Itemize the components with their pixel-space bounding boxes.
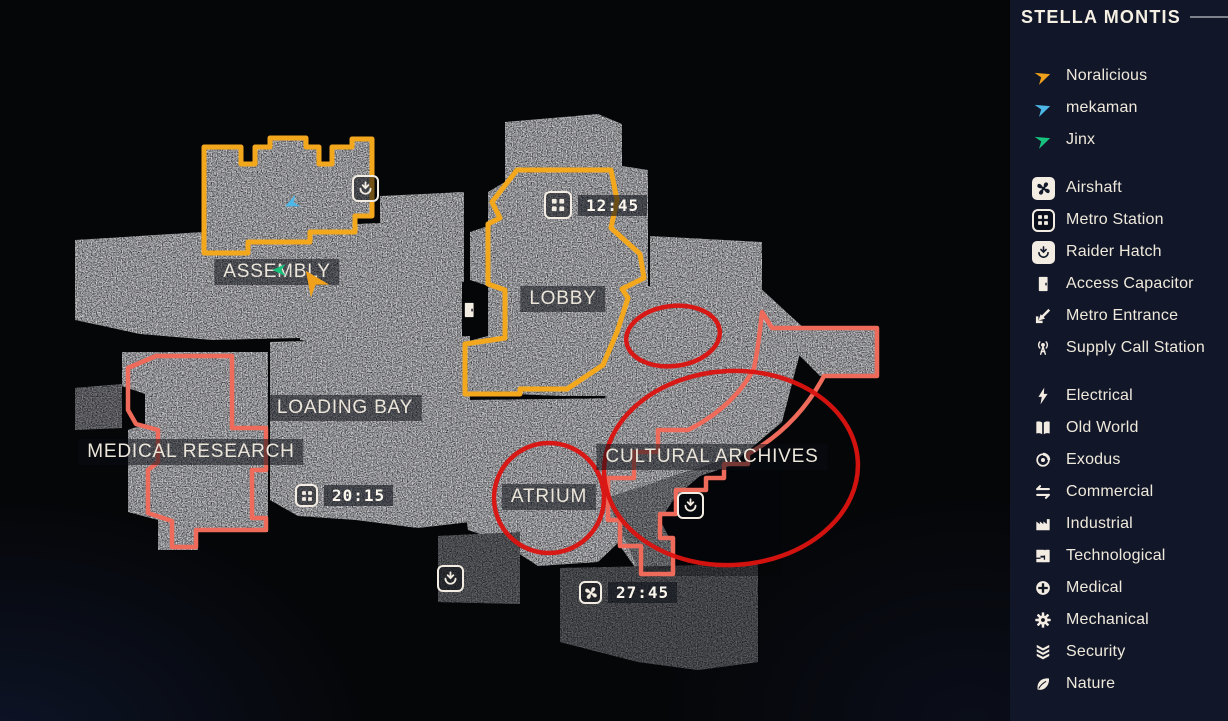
electrical-icon: [1032, 385, 1054, 407]
supply-call-station-icon: [1032, 337, 1054, 359]
metro-station-timer[interactable]: 12:45: [544, 191, 647, 219]
icon-cell: [1031, 608, 1055, 632]
raider-hatch-map-marker[interactable]: [677, 492, 704, 519]
legend-category-security: Security: [1010, 636, 1228, 668]
player-noralicious: Noralicious: [1010, 60, 1228, 92]
player-label: Noralicious: [1066, 67, 1147, 85]
legend-marker-supply-call-station: Supply Call Station: [1010, 332, 1228, 364]
game-map-screen: { "colors": { "region_yellow": "#f2a71c"…: [0, 0, 1228, 721]
icon-cell: [1031, 640, 1055, 664]
area-label-medical-research: MEDICAL RESEARCH: [78, 439, 303, 465]
airshaft-icon: [1032, 177, 1055, 200]
area-label-cultural-archives: CULTURAL ARCHIVES: [596, 444, 827, 470]
icon-cell: [1031, 512, 1055, 536]
raider-hatch-map-marker[interactable]: [352, 175, 379, 202]
map-overlays: ASSEMBLYLOBBYLOADING BAYMEDICAL RESEARCH…: [0, 0, 1010, 721]
airshaft-icon: [579, 581, 602, 604]
player-label: Jinx: [1066, 131, 1095, 149]
technological-icon: [1032, 545, 1054, 567]
access-capacitor-icon: [458, 299, 480, 321]
legend-marker-label: Supply Call Station: [1066, 339, 1205, 357]
legend-category-industrial: Industrial: [1010, 508, 1228, 540]
timer-value: 27:45: [608, 582, 677, 603]
legend-category-label: Electrical: [1066, 387, 1133, 405]
legend-category-label: Mechanical: [1066, 611, 1149, 629]
raider-hatch-icon: [1032, 241, 1055, 264]
legend-marker-metro-station: Metro Station: [1010, 204, 1228, 236]
legend-category-electrical: Electrical: [1010, 380, 1228, 412]
legend-category-exodus: Exodus: [1010, 444, 1228, 476]
raider-hatch-icon: [437, 565, 464, 592]
raider-hatch-icon: [352, 175, 379, 202]
legend-category-label: Old World: [1066, 419, 1139, 437]
icon-cell: [1031, 416, 1055, 440]
metro-station-icon: [1032, 209, 1055, 232]
mechanical-icon: [1032, 609, 1054, 631]
legend-marker-airshaft: Airshaft: [1010, 172, 1228, 204]
airshaft-timer[interactable]: 27:45: [579, 581, 677, 604]
legend-sidebar: STELLA MONTIS NoraliciousmekamanJinx Air…: [1010, 0, 1228, 721]
access-capacitor-map-marker[interactable]: [458, 299, 480, 321]
icon-cell: [1031, 480, 1055, 504]
icon-cell: [1031, 240, 1055, 264]
player-marker-jinx[interactable]: [271, 262, 287, 278]
legend-category-label: Exodus: [1066, 451, 1121, 469]
player-marker-mekaman[interactable]: [280, 192, 303, 215]
access-capacitor-icon: [1032, 273, 1054, 295]
player-arrow-icon: [1032, 97, 1054, 119]
commercial-icon: [1032, 481, 1054, 503]
category-legend: Electrical Old World Exodus CommercialIn…: [1010, 380, 1228, 700]
legend-category-mechanical: Mechanical: [1010, 604, 1228, 636]
player-arrow-icon: [1032, 65, 1054, 87]
raider-hatch-icon: [677, 492, 704, 519]
icon-cell: [1031, 544, 1055, 568]
metro-entrance-icon: [1032, 305, 1054, 327]
legend-category-label: Industrial: [1066, 515, 1133, 533]
icon-cell: [1031, 304, 1055, 328]
medical-icon: [1032, 577, 1054, 599]
legend-marker-raider-hatch: Raider Hatch: [1010, 236, 1228, 268]
icon-cell: [1031, 272, 1055, 296]
icon-cell: [1031, 64, 1055, 88]
legend-marker-metro-entrance: Metro Entrance: [1010, 300, 1228, 332]
icon-cell: [1031, 384, 1055, 408]
legend-category-label: Technological: [1066, 547, 1166, 565]
metro-station-icon: [295, 484, 318, 507]
map-title: STELLA MONTIS: [1010, 0, 1228, 28]
legend-marker-label: Metro Station: [1066, 211, 1164, 229]
timer-value: 12:45: [578, 195, 647, 216]
metro-station-icon: [544, 191, 572, 219]
player-arrow-icon: [1032, 129, 1054, 151]
icon-cell: [1031, 448, 1055, 472]
industrial-icon: [1032, 513, 1054, 535]
legend-marker-label: Access Capacitor: [1066, 275, 1194, 293]
icon-cell: [1031, 96, 1055, 120]
player-mekaman: mekaman: [1010, 92, 1228, 124]
area-label-loading-bay: LOADING BAY: [268, 395, 422, 421]
old-world-icon: [1032, 417, 1054, 439]
legend-category-label: Nature: [1066, 675, 1115, 693]
raider-hatch-map-marker[interactable]: [437, 565, 464, 592]
legend-category-old-world: Old World: [1010, 412, 1228, 444]
icon-cell: [1031, 576, 1055, 600]
legend-category-label: Commercial: [1066, 483, 1153, 501]
legend-category-technological: Technological: [1010, 540, 1228, 572]
exodus-icon: [1032, 449, 1054, 471]
area-label-lobby: LOBBY: [520, 286, 605, 312]
world-map[interactable]: ASSEMBLYLOBBYLOADING BAYMEDICAL RESEARCH…: [0, 0, 1010, 721]
metro-station-timer[interactable]: 20:15: [295, 484, 393, 507]
legend-category-label: Security: [1066, 643, 1125, 661]
icon-cell: [1031, 176, 1055, 200]
legend-category-commercial: Commercial: [1010, 476, 1228, 508]
legend-category-medical: Medical: [1010, 572, 1228, 604]
title-rule: [1190, 16, 1228, 18]
security-icon: [1032, 641, 1054, 663]
legend-marker-label: Airshaft: [1066, 179, 1122, 197]
icon-cell: [1031, 672, 1055, 696]
icon-cell: [1031, 208, 1055, 232]
player-jinx: Jinx: [1010, 124, 1228, 156]
area-label-atrium: ATRIUM: [502, 484, 596, 510]
timer-value: 20:15: [324, 485, 393, 506]
legend-marker-label: Raider Hatch: [1066, 243, 1162, 261]
player-legend: NoraliciousmekamanJinx: [1010, 60, 1228, 156]
legend-category-label: Medical: [1066, 579, 1123, 597]
nature-icon: [1032, 673, 1054, 695]
legend-marker-access-capacitor: Access Capacitor: [1010, 268, 1228, 300]
marker-legend: Airshaft Metro Station Raider Hatch Acce…: [1010, 172, 1228, 364]
legend-marker-label: Metro Entrance: [1066, 307, 1178, 325]
player-label: mekaman: [1066, 99, 1138, 117]
icon-cell: [1031, 336, 1055, 360]
legend-category-nature: Nature: [1010, 668, 1228, 700]
icon-cell: [1031, 128, 1055, 152]
